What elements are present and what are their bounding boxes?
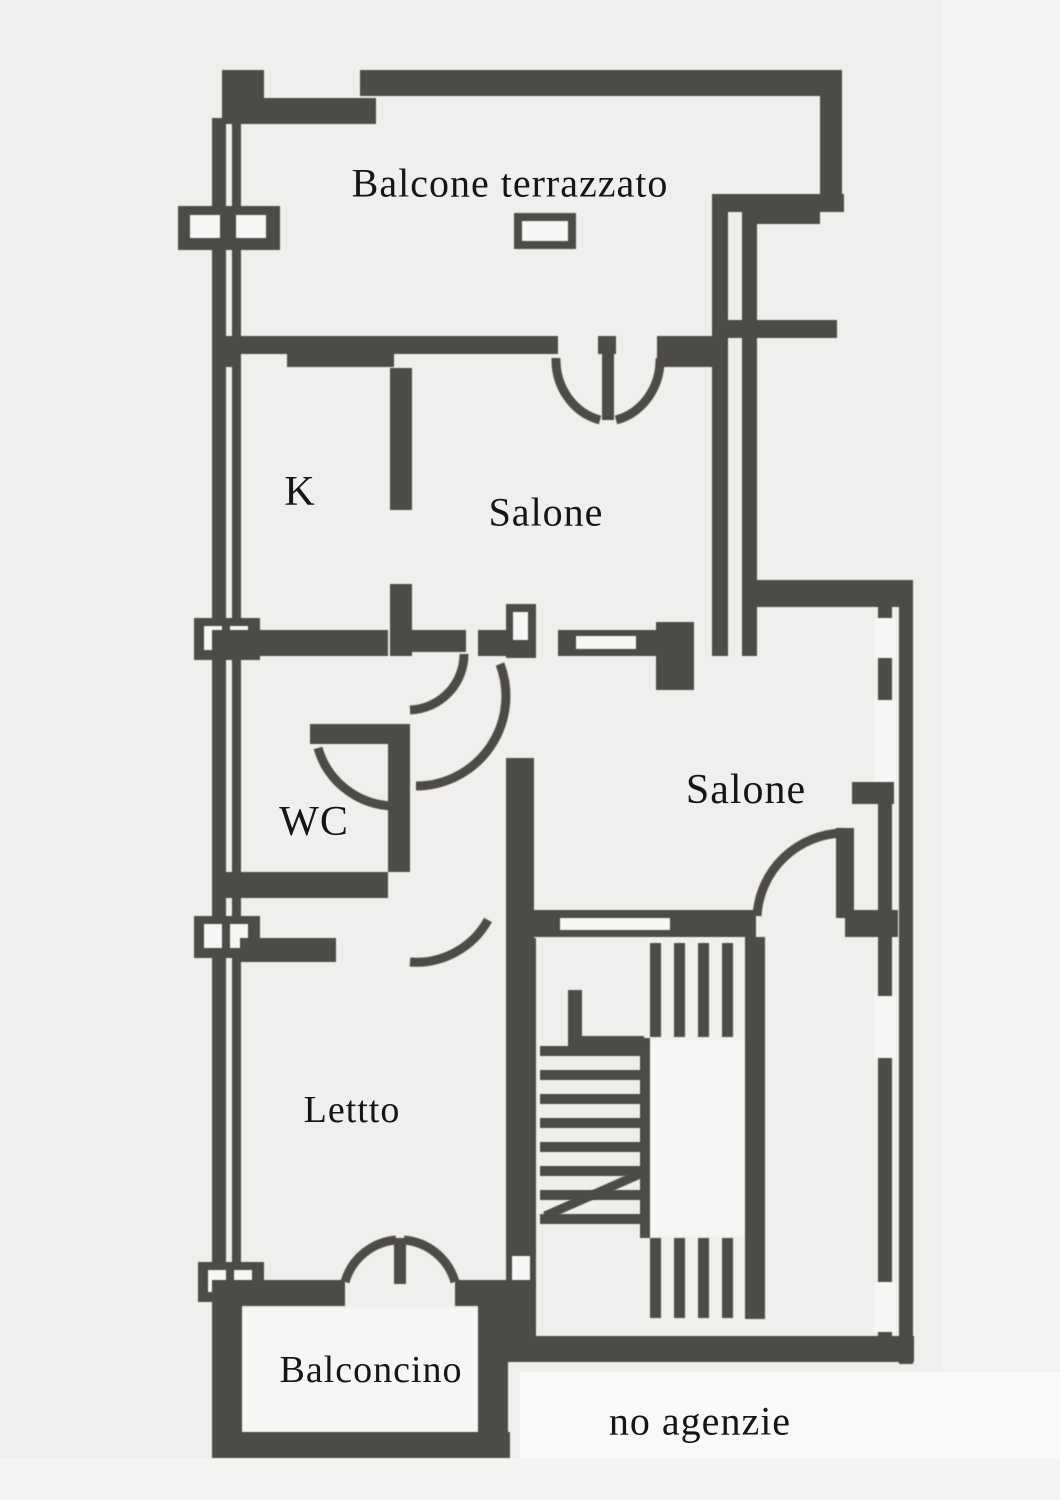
- room-label-wc: WC: [279, 798, 349, 846]
- door-arc: [616, 358, 660, 420]
- room-label-kitchen: K: [284, 468, 315, 516]
- stair-divider-wall: [745, 937, 765, 1319]
- wall-segment: [212, 630, 388, 656]
- door-leaf: [602, 354, 614, 420]
- door-leaf: [836, 828, 854, 918]
- railing-outer-line: [212, 118, 226, 1308]
- walls-layer: [0, 0, 1060, 1500]
- railing-post-hole: [230, 924, 248, 948]
- window-slot: [576, 636, 636, 649]
- wall-segment: [388, 724, 410, 872]
- wall-segment: [899, 598, 913, 1364]
- door-arc: [410, 654, 464, 710]
- wall-segment: [506, 938, 536, 1338]
- railing-post-hole: [208, 1270, 226, 1292]
- wall-segment: [310, 724, 388, 744]
- wall-segment: [712, 194, 728, 656]
- door-mullion: [598, 336, 616, 354]
- railing-post-hole: [204, 924, 222, 948]
- railing-post: [178, 206, 280, 250]
- wall-segment: [478, 1302, 508, 1458]
- door-arc: [556, 358, 600, 420]
- railing-post-hole: [230, 626, 248, 650]
- wall-segment: [640, 1038, 650, 1238]
- wall-segment: [455, 1280, 536, 1306]
- doors-layer: [0, 0, 1060, 1500]
- stair-direction-line: [545, 1174, 640, 1216]
- stair-shaft: [650, 1040, 745, 1236]
- wall-segment: [558, 630, 658, 656]
- wall-segment: [212, 872, 388, 898]
- wall-segment: [748, 212, 820, 224]
- stair-steps-left: [540, 1046, 640, 1236]
- column-post: [656, 622, 694, 690]
- door-arc: [345, 1240, 396, 1282]
- wall-segment: [568, 990, 582, 1050]
- wall-segment: [390, 368, 412, 510]
- wall-segment: [506, 758, 534, 940]
- paper-shade-bottom: [0, 1458, 1060, 1500]
- window-slot: [874, 996, 896, 1058]
- window-slot: [874, 1282, 896, 1332]
- railing-post: [198, 1262, 264, 1302]
- wall-segment: [878, 598, 892, 1346]
- door-arc: [416, 664, 506, 786]
- room-label-salone-upper: Salone: [489, 489, 604, 536]
- terrace-window-symbol: [514, 213, 576, 249]
- wall-segment: [657, 336, 712, 354]
- door-leaf: [394, 1238, 406, 1284]
- wall-segment: [820, 78, 842, 210]
- wall-segment: [657, 354, 712, 367]
- wall-segment: [222, 70, 264, 124]
- wall-segment: [287, 354, 394, 367]
- floorplan-scan: Balcone terrazzato K Salone WC Salone Le…: [0, 0, 1060, 1500]
- railing-post-hole: [236, 215, 266, 238]
- room-label-balconcino: Balconcino: [279, 1348, 462, 1392]
- door-leaf: [408, 630, 466, 652]
- wall-segment: [534, 910, 756, 937]
- paper-shade-right: [942, 0, 1060, 1500]
- wall-segment: [390, 584, 412, 656]
- railing-post-hole: [190, 215, 220, 238]
- wall-segment: [212, 1300, 242, 1458]
- window-slot: [874, 700, 896, 788]
- wall-segment: [478, 630, 536, 656]
- wall-segment: [712, 194, 844, 212]
- wall-segment: [568, 1036, 644, 1050]
- wall-pier: [852, 782, 894, 804]
- window-slot: [560, 918, 670, 930]
- railing-inner-line: [232, 118, 241, 1308]
- column-post: [506, 604, 536, 658]
- railing-post-hole: [234, 1270, 252, 1292]
- door-arc: [757, 833, 843, 916]
- wall-segment: [212, 354, 238, 367]
- railing-post: [194, 916, 260, 958]
- column-post-hole: [513, 612, 528, 640]
- railing-post-hole: [204, 626, 222, 650]
- wall-segment: [360, 70, 842, 96]
- room-label-balcone-terrazzato: Balcone terrazzato: [352, 160, 669, 207]
- wall-segment: [727, 320, 837, 338]
- room-label-salone-lower: Salone: [686, 766, 806, 814]
- wall-segment: [845, 910, 898, 937]
- railing-post: [194, 618, 260, 660]
- door-arc: [410, 920, 488, 962]
- window-slot: [874, 618, 896, 658]
- stair-steps-lower: [650, 1238, 748, 1318]
- wall-segment: [240, 98, 376, 124]
- wall-segment: [212, 1280, 345, 1306]
- room-label-letto: Lettto: [304, 1088, 401, 1132]
- wall-segment: [747, 580, 913, 607]
- wall-segment: [508, 1336, 914, 1362]
- door-slot: [512, 1256, 530, 1302]
- note-no-agenzie: no agenzie: [609, 1398, 791, 1445]
- door-arc: [404, 1240, 455, 1282]
- wall-segment: [240, 938, 336, 962]
- stair-steps-upper: [650, 943, 748, 1037]
- wall-segment: [212, 336, 558, 354]
- wall-segment: [742, 212, 757, 656]
- wall-segment: [212, 1432, 510, 1458]
